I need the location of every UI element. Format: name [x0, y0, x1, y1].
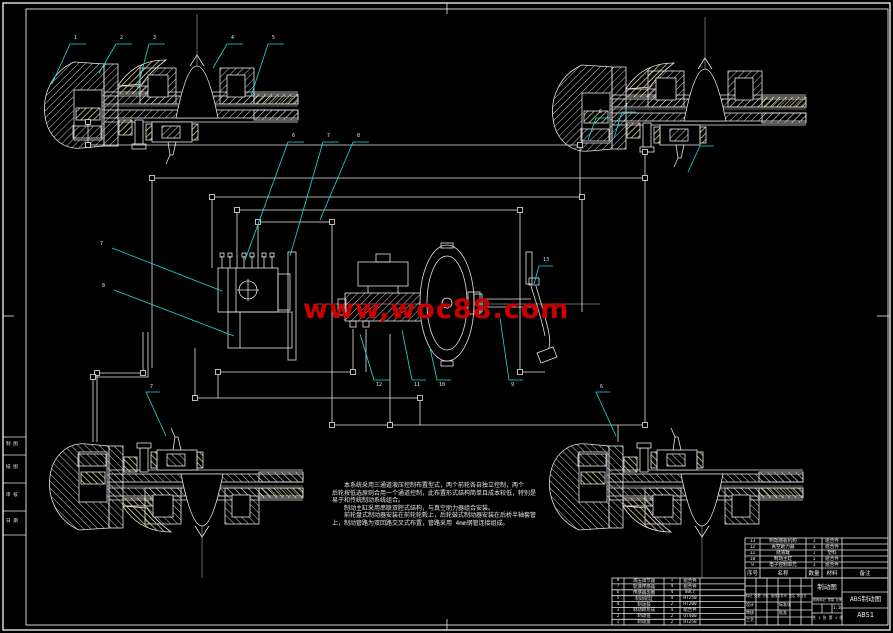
note-line: 后轮按低选原则合用一个通道控制，此布置形式结构简单且成本较低，特别是	[332, 490, 542, 498]
bom-right-header: 序号 名称 数量 材料 备注	[745, 568, 888, 578]
bom-cell: 12	[745, 545, 760, 550]
bom-header-cell: 序号	[745, 569, 760, 577]
bom-cell: HT250	[680, 620, 700, 625]
bom-cell: 1	[806, 563, 822, 568]
bom-cell: 40Cr	[680, 590, 700, 595]
bom-left-rows: 8 液压调节器 1 组合件 7 轮速传感器 4 组合件 6 传感器齿圈 4 40…	[612, 578, 744, 625]
note-line: 上，制动管路为双回路交叉式布置，管路采用 4mm钢管连接组成。	[332, 520, 542, 528]
watermark-text: www,woc88.com	[303, 294, 569, 325]
bom-cell: 组合件	[680, 584, 700, 590]
change-record-header: 标记 处数 分区 更改文件号 签名 年月日	[746, 595, 811, 598]
bom-cell: 4	[664, 608, 680, 613]
bom-cell: 2	[664, 614, 680, 619]
callout-label: 11	[414, 383, 420, 388]
margin-strip-label: 描 图	[6, 466, 18, 471]
callout-label: 1	[74, 36, 77, 41]
bom-cell: 4	[664, 596, 680, 601]
bom-cell: 11	[745, 551, 760, 556]
abs-ecu-box	[228, 312, 292, 348]
role-process: 工艺	[746, 618, 754, 622]
callout-label: 6	[600, 385, 603, 390]
bom-cell: 2	[612, 614, 624, 619]
note-line: 前轮盘式制动器安装在前轮轮毂上，后轮鼓式制动器安装在后桥半轴套管	[332, 512, 542, 520]
bom-cell: 7	[612, 584, 624, 589]
margin-strip-label: 制 图	[6, 443, 18, 448]
callout-label: 13	[543, 258, 549, 263]
note-line: 易于和传统制动系统组合。	[332, 497, 542, 505]
note-line: 本系统采用三通道液压控制布置型式，两个前轮各自独立控制，两个	[332, 482, 542, 490]
callout-label: 8	[357, 134, 360, 139]
callout-label: 2	[120, 36, 123, 41]
pipe-fittings	[86, 120, 648, 428]
abs-modulator-unit	[218, 252, 296, 360]
bom-cell: 1	[806, 545, 822, 550]
callout-label: 9	[511, 383, 514, 388]
bom-cell: 1	[806, 551, 822, 556]
notes-block: 本系统采用三通道液压控制布置型式，两个前轮各自独立控制，两个 后轮按低选原则合用…	[332, 482, 542, 527]
callout-label: 8	[102, 284, 105, 289]
drawing-number: ABS1	[843, 612, 888, 619]
scale-value: 1:10	[833, 606, 843, 610]
role-check: 审核	[746, 611, 754, 615]
role-design: 设计	[746, 603, 754, 607]
bom-cell: 1	[664, 578, 680, 583]
bom-cell: 3	[612, 608, 624, 613]
callout-label: 7	[100, 242, 103, 247]
front-right-wheel-assembly	[552, 17, 806, 167]
bom-header-cell: 名称	[760, 569, 806, 577]
bom-cell: 4	[664, 584, 680, 589]
callout-label: 6	[292, 134, 295, 139]
role-approve: 批准	[779, 611, 787, 615]
callout-label: 4	[231, 36, 234, 41]
cad-drawing-canvas: www,woc88.com 本系统采用三通道液压控制布置型式，两个前轮各自独立控…	[0, 0, 893, 633]
callout-label: 5	[272, 36, 275, 41]
bom-cell: 1	[806, 557, 822, 562]
bom-header-cell: 数量	[806, 569, 822, 577]
sheet-count: 共 1 张 第 1 张	[812, 616, 842, 620]
callout-label: 7	[150, 385, 153, 390]
note-line: 制动主缸采用串联双腔式结构，与真空助力器组合安装。	[332, 505, 542, 513]
bom-cell: 2	[664, 602, 680, 607]
bom-cell: 1	[612, 620, 624, 625]
doc-type-label: 制动图	[813, 584, 841, 591]
bom-cell: 5	[612, 596, 624, 601]
bom-cell: HT250	[680, 596, 700, 601]
bom-cell: 10	[745, 557, 760, 562]
brake-pipes	[86, 120, 649, 443]
margin-strip-label: 日 期	[6, 520, 18, 525]
bom-cell: 4	[612, 602, 624, 607]
bom-cell: 制动盘	[624, 619, 664, 625]
callout-label: 12	[376, 383, 382, 388]
bom-header-cell: 材料	[822, 569, 842, 577]
margin-strip-label: 审 核	[6, 494, 18, 499]
bom-cell: 8	[612, 578, 624, 583]
bom-cell: QT400	[680, 614, 700, 619]
bom-cell: HT200	[680, 602, 700, 607]
bom-right-rows: 13 制动踏板机构 1 组合件 12 真空助力器 1 组合件 11 储液罐 1 …	[745, 538, 888, 568]
rear-left-wheel-assembly	[49, 428, 303, 578]
bom-cell: 1	[806, 539, 822, 544]
callout-label: 7	[625, 104, 628, 109]
front-left-wheel-assembly	[44, 14, 298, 164]
stage-weight-scale-header: 阶段标记 重量 比例	[813, 599, 841, 602]
bom-cell: 4	[664, 590, 680, 595]
bom-cell: 6	[612, 590, 624, 595]
callout-label: 3	[153, 36, 156, 41]
bom-cell: 组合件	[680, 607, 700, 613]
bom-cell: 9	[745, 563, 760, 568]
drawing-title: ABS制动图	[843, 596, 888, 603]
callout-label: 6	[599, 110, 602, 115]
bom-header-cell: 备注	[842, 569, 888, 577]
callout-label: 10	[439, 383, 445, 388]
bom-cell: 13	[745, 539, 760, 544]
callout-label: 7	[327, 134, 330, 139]
bom-cell: 2	[664, 620, 680, 625]
role-standard: 标准化	[779, 603, 791, 607]
